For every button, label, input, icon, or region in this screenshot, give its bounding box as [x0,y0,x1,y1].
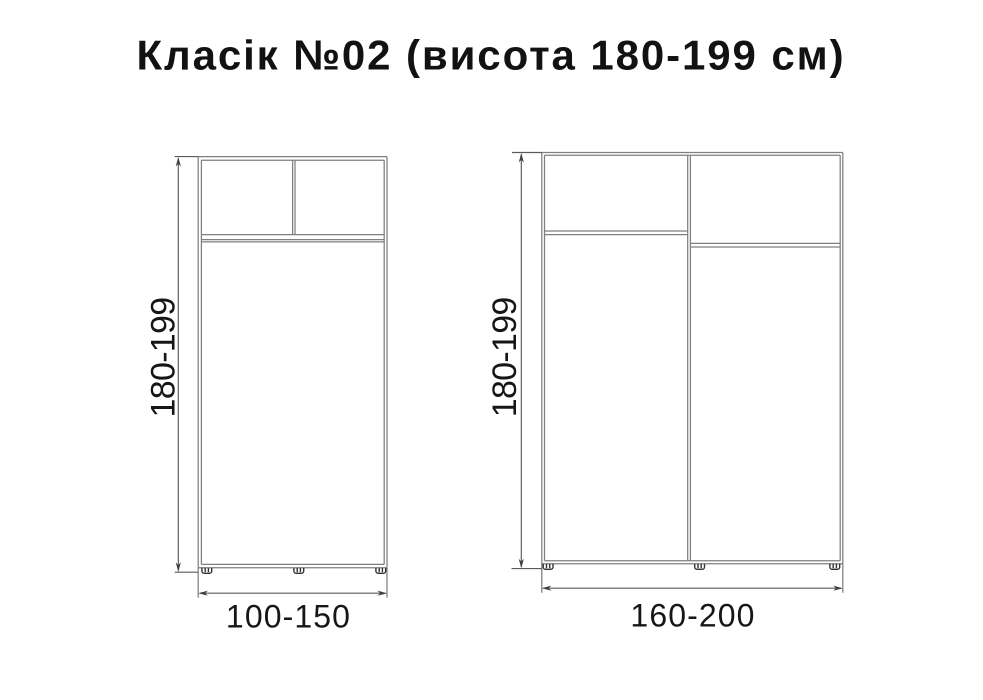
svg-text:180-199: 180-199 [486,297,524,417]
svg-text:160-200: 160-200 [630,598,755,634]
svg-text:180-199: 180-199 [145,298,183,418]
svg-text:Класік №02 (висота 180-199 см): Класік №02 (висота 180-199 см) [136,32,845,79]
svg-text:100-150: 100-150 [226,598,351,634]
